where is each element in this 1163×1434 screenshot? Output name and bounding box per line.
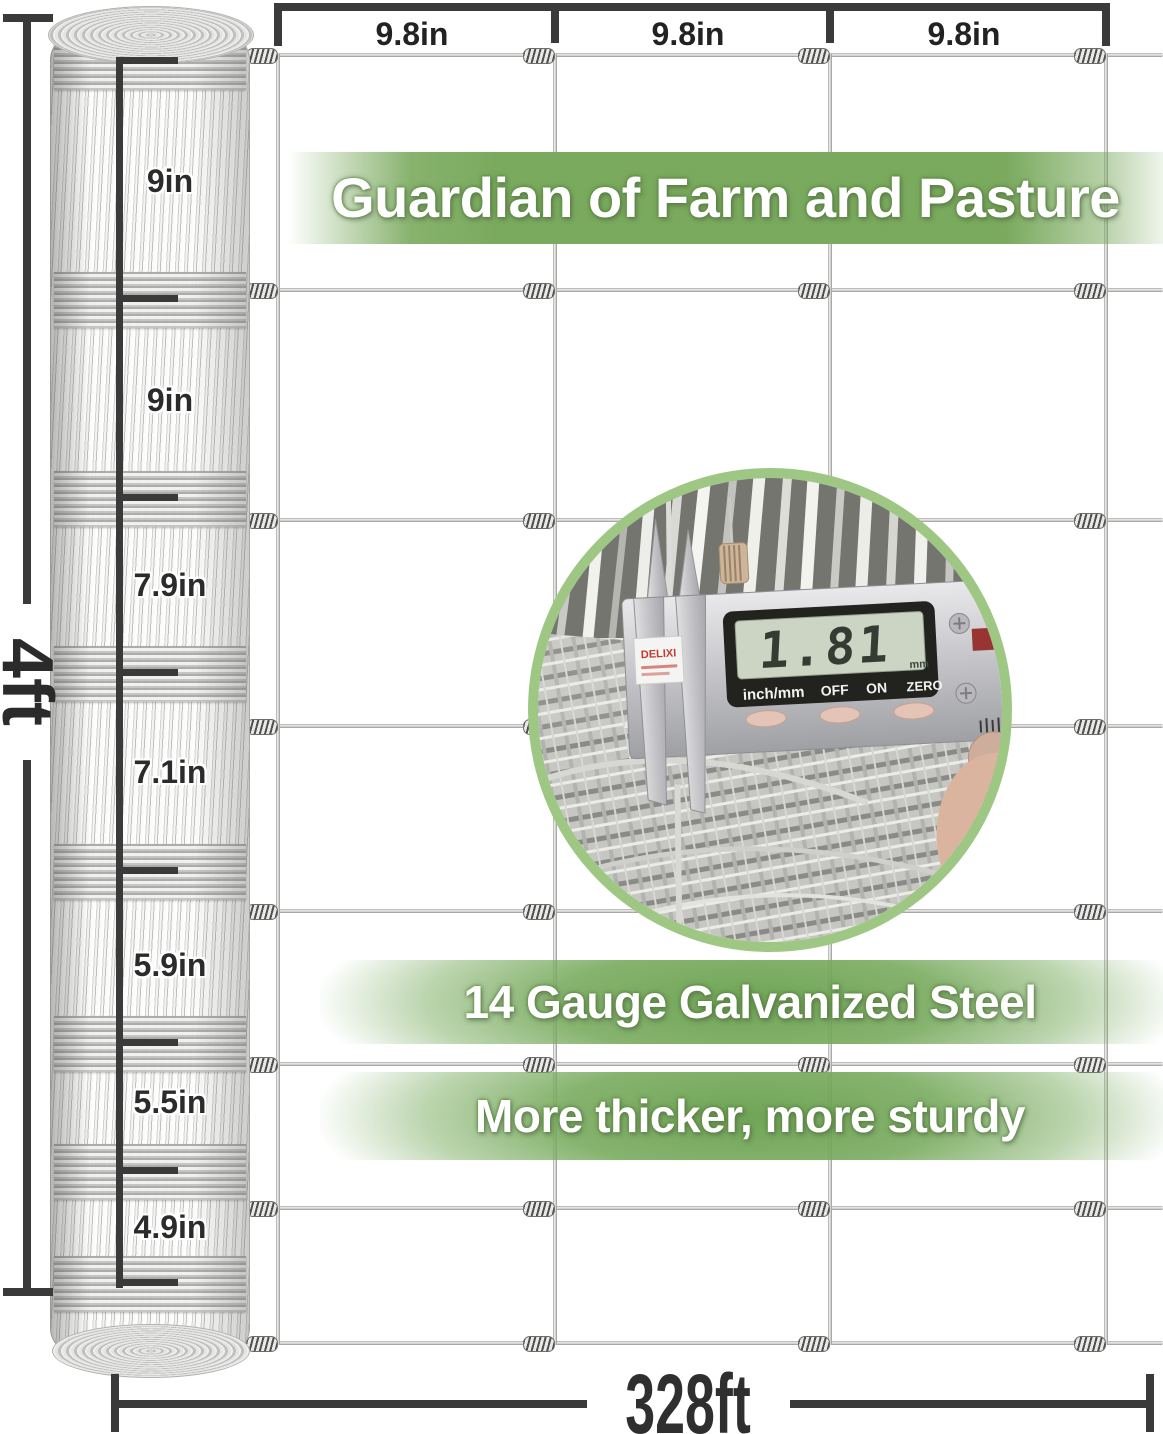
feature-banner-sturdy-text: More thicker, more sturdy bbox=[475, 1072, 1025, 1160]
fence-roll-top-cap bbox=[48, 6, 254, 64]
roll-dimension-tick bbox=[116, 494, 178, 501]
horizontal-wire bbox=[226, 1206, 1163, 1210]
fence-roll-shading bbox=[50, 34, 250, 1354]
button-label-zero: ZERO bbox=[906, 677, 943, 694]
length-dimension-line-right bbox=[790, 1400, 1150, 1408]
top-dimension-tick-2 bbox=[551, 3, 559, 43]
fence-roll-bottom-cap bbox=[52, 1324, 250, 1378]
roll-spacing-label: 7.9in bbox=[105, 561, 235, 609]
horizontal-wire bbox=[226, 288, 1163, 292]
product-infographic: Guardian of Farm and Pasture 14 Gauge Ga… bbox=[0, 0, 1163, 1434]
height-dimension-bottom-tick bbox=[3, 1288, 53, 1296]
wire-knot bbox=[246, 1057, 278, 1073]
vertical-spacing-label: 9.8in bbox=[618, 16, 758, 53]
horizontal-wire bbox=[226, 1341, 1163, 1345]
horizontal-wire bbox=[226, 53, 1163, 57]
feature-banner-sturdy: More thicker, more sturdy bbox=[320, 1072, 1163, 1160]
roll-length-label: 328ft bbox=[624, 1360, 752, 1434]
roll-spacing-label: 9in bbox=[105, 376, 235, 424]
vertical-wire bbox=[276, 53, 280, 1345]
frame-screw-top bbox=[949, 613, 970, 634]
horizontal-wire bbox=[226, 1062, 1163, 1066]
button-label-inchmm: inch/mm bbox=[742, 684, 804, 704]
top-dimension-tick-3 bbox=[826, 3, 834, 43]
ruler-red-stripe bbox=[972, 627, 1001, 650]
top-dimension-tick-4 bbox=[1102, 3, 1110, 46]
lcd-value: 1.81 bbox=[758, 614, 893, 680]
wire-knot bbox=[523, 1336, 555, 1352]
wire-knot bbox=[246, 513, 278, 529]
wire-knot bbox=[1074, 904, 1106, 920]
caliper-photo-inset: DELIXI 1.81 mm inch/mm OFF ON ZERO bbox=[528, 468, 1012, 952]
roll-dimension-tick bbox=[116, 867, 178, 874]
roll-dimension-tick bbox=[116, 1039, 178, 1046]
wire-knot bbox=[1074, 1336, 1106, 1352]
roll-dimension-tick bbox=[116, 295, 178, 302]
roll-dimension-tick bbox=[116, 1279, 178, 1286]
roll-spacing-label: 7.1in bbox=[105, 748, 235, 796]
roll-spacing-label: 5.5in bbox=[105, 1078, 235, 1126]
lcd-unit: mm bbox=[909, 658, 929, 671]
wire-knot bbox=[798, 1201, 830, 1217]
feature-banner-gauge: 14 Gauge Galvanized Steel bbox=[320, 960, 1163, 1044]
top-dimension-tick-1 bbox=[274, 3, 282, 46]
wire-knot bbox=[246, 719, 278, 735]
wire-knot bbox=[1074, 513, 1106, 529]
wire-knot bbox=[1074, 48, 1106, 64]
wire-knot bbox=[523, 1057, 555, 1073]
main-banner: Guardian of Farm and Pasture bbox=[288, 152, 1163, 244]
wire-knot bbox=[1074, 1057, 1106, 1073]
brand-text: DELIXI bbox=[641, 647, 677, 661]
wire-knot bbox=[798, 283, 830, 299]
length-dimension-line-left bbox=[117, 1400, 587, 1408]
wire-knot bbox=[246, 283, 278, 299]
feature-banner-gauge-text: 14 Gauge Galvanized Steel bbox=[464, 960, 1037, 1044]
wire-knot bbox=[246, 1336, 278, 1352]
length-dimension-left-tick bbox=[111, 1374, 119, 1432]
wire-knot bbox=[246, 1201, 278, 1217]
lcd-readout: 1.81 bbox=[758, 614, 893, 680]
wire-knot bbox=[1074, 1201, 1106, 1217]
wire-knot bbox=[523, 48, 555, 64]
wire-knot bbox=[798, 48, 830, 64]
brand-label: DELIXI bbox=[634, 636, 684, 684]
main-banner-text: Guardian of Farm and Pasture bbox=[331, 152, 1120, 244]
fence-height-label: 4ft bbox=[0, 602, 57, 762]
wire-knot bbox=[523, 283, 555, 299]
wire-knot bbox=[1074, 283, 1106, 299]
roll-dimension-tick bbox=[116, 669, 178, 676]
button-label-off: OFF bbox=[820, 681, 849, 698]
height-dimension-line-upper bbox=[23, 14, 31, 604]
caliper-lock-screw bbox=[719, 542, 749, 583]
wire-knot bbox=[523, 1201, 555, 1217]
roll-dimension-tick bbox=[116, 1167, 178, 1174]
length-dimension-right-tick bbox=[1146, 1374, 1154, 1432]
frame-screw-bottom bbox=[956, 683, 977, 704]
vertical-spacing-label: 9.8in bbox=[342, 16, 482, 53]
height-dimension-line-lower bbox=[23, 760, 31, 1294]
wire-knot bbox=[523, 513, 555, 529]
roll-spacing-label: 9in bbox=[105, 157, 235, 205]
wire-knot bbox=[798, 1057, 830, 1073]
wire-knot bbox=[246, 904, 278, 920]
caliper-illustration: DELIXI 1.81 mm inch/mm OFF ON ZERO bbox=[538, 478, 1002, 942]
roll-spacing-label: 5.9in bbox=[105, 941, 235, 989]
wire-knot bbox=[1074, 719, 1106, 735]
wire-knot bbox=[523, 904, 555, 920]
wire-knot bbox=[798, 1336, 830, 1352]
roll-spacing-label: 4.9in bbox=[105, 1203, 235, 1251]
button-label-on: ON bbox=[866, 679, 888, 696]
top-dimension-bar bbox=[274, 3, 1110, 11]
wire-knot bbox=[246, 48, 278, 64]
roll-dimension-tick bbox=[116, 57, 178, 64]
vertical-spacing-label: 9.8in bbox=[894, 16, 1034, 53]
